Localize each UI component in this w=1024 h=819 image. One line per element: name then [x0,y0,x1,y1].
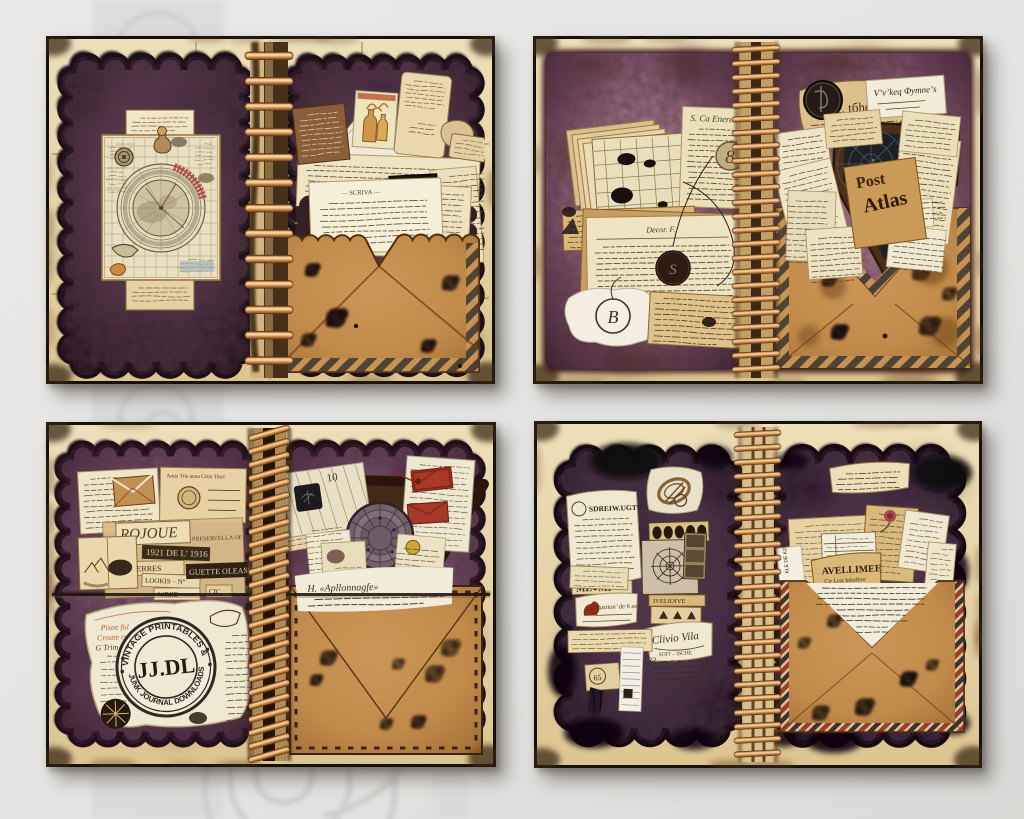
svg-text:Pisae ful: Pisae ful [100,622,130,632]
svg-text:Amis Tris anna Crim Tesri: Amis Tris anna Crim Tesri [166,473,225,480]
svg-text:IVELIOIVE: IVELIOIVE [653,598,686,605]
svg-text:65: 65 [593,673,602,683]
svg-text:S: S [669,262,677,278]
svg-text:G Trim: G Trim [95,643,118,653]
svg-text:LOOKIS – N°: LOOKIS – N° [145,577,186,586]
svg-text:B: B [608,307,619,327]
svg-text:Decor. F.: Decor. F. [645,225,675,235]
svg-text:10: 10 [326,471,339,484]
svg-text:H. «Apllonnagfe»: H. «Apllonnagfe» [306,582,378,595]
svg-text:SDREIW.UGTU: SDREIW.UGTU [589,503,643,514]
svg-text:— SCRIVA —: — SCRIVA — [340,189,381,197]
svg-text:S. Ca Enere: S. Ca Enere [690,113,733,124]
svg-text:32: 32 [647,656,656,665]
